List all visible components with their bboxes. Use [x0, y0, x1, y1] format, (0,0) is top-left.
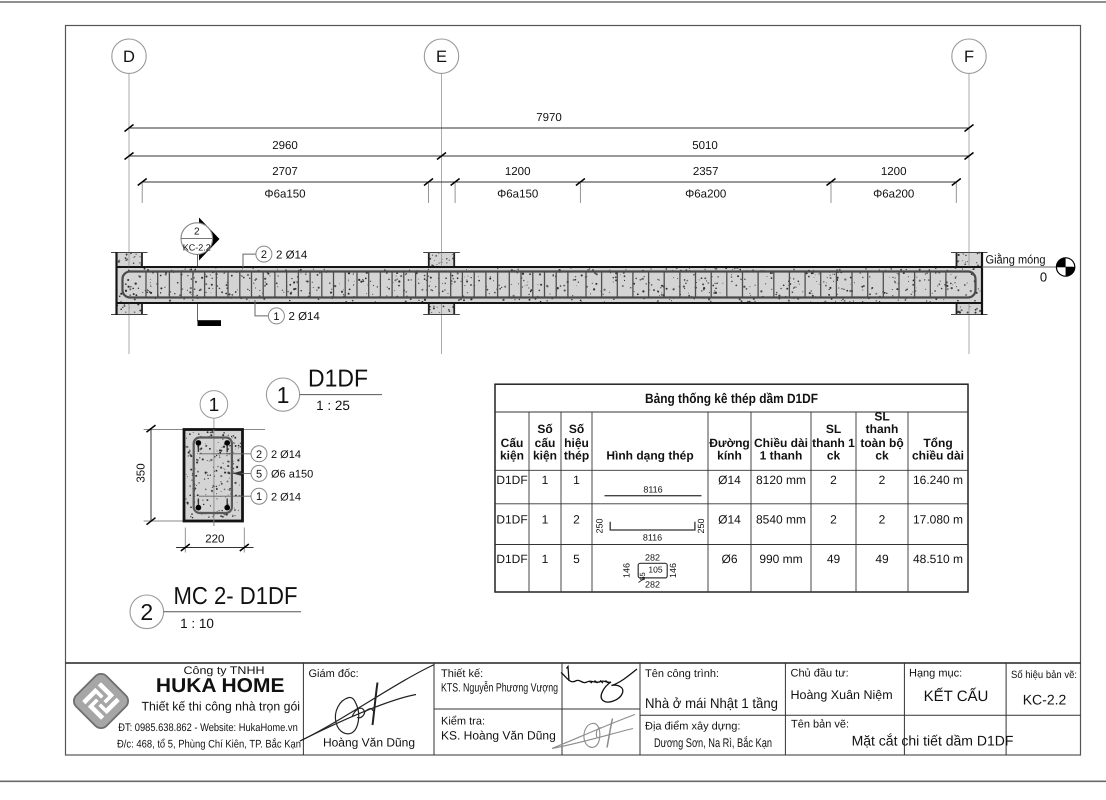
svg-text:2960: 2960	[272, 140, 298, 152]
svg-text:E: E	[436, 48, 447, 66]
svg-text:Ø6 a150: Ø6 a150	[271, 469, 313, 481]
svg-text:2: 2	[830, 513, 837, 527]
svg-text:KTS. Nguyễn Phương Vượng: KTS. Nguyễn Phương Vượng	[441, 681, 558, 695]
svg-text:1: 1	[542, 552, 549, 566]
svg-text:5: 5	[573, 552, 580, 566]
svg-text:Địa điểm xây dựng:: Địa điểm xây dựng:	[645, 721, 740, 733]
svg-text:8540 mm: 8540 mm	[756, 513, 806, 527]
svg-text:D1DF: D1DF	[496, 552, 527, 566]
svg-text:Số: Số	[537, 422, 552, 436]
svg-text:MC 2- D1DF: MC 2- D1DF	[174, 583, 298, 610]
svg-text:2: 2	[261, 249, 267, 261]
svg-text:Hoàng Xuân Niệm: Hoàng Xuân Niệm	[791, 688, 893, 702]
svg-text:Dương Sơn, Na Rì, Bắc Kạn: Dương Sơn, Na Rì, Bắc Kạn	[654, 736, 772, 750]
svg-text:thanh: thanh	[866, 422, 899, 436]
svg-text:Hạng mục:: Hạng mục:	[909, 668, 962, 680]
svg-text:1: 1	[256, 491, 262, 503]
svg-text:146: 146	[668, 563, 678, 578]
svg-text:250: 250	[595, 518, 605, 533]
svg-text:Số hiệu bản vẽ:: Số hiệu bản vẽ:	[1011, 669, 1077, 681]
svg-text:Chủ đầu tư:: Chủ đầu tư:	[791, 668, 849, 680]
svg-text:1 thanh: 1 thanh	[760, 449, 803, 463]
svg-text:2: 2	[830, 473, 837, 487]
svg-text:2: 2	[879, 513, 886, 527]
svg-text:Hoàng Văn Dũng: Hoàng Văn Dũng	[323, 736, 415, 750]
svg-text:Tên công trình:: Tên công trình:	[645, 668, 719, 680]
svg-text:Ø14: Ø14	[718, 513, 741, 527]
svg-text:8120 mm: 8120 mm	[756, 473, 806, 487]
svg-text:Nhà ở mái Nhật 1 tầng: Nhà ở mái Nhật 1 tầng	[645, 695, 778, 711]
svg-text:2: 2	[879, 473, 886, 487]
svg-text:KC-2.2: KC-2.2	[1023, 692, 1067, 708]
svg-text:1: 1	[277, 382, 290, 408]
svg-text:ck: ck	[875, 449, 889, 463]
svg-text:ĐT: 0985.638.862 - Website: Hu: ĐT: 0985.638.862 - Website: HukaHome.vn	[118, 722, 298, 734]
svg-text:KS. Hoàng Văn Dũng: KS. Hoàng Văn Dũng	[441, 729, 556, 743]
svg-text:Φ6a150: Φ6a150	[497, 189, 538, 201]
svg-text:1: 1	[573, 473, 580, 487]
svg-text:2 Ø14: 2 Ø14	[276, 249, 308, 261]
svg-text:1: 1	[273, 311, 279, 323]
svg-text:2 Ø14: 2 Ø14	[271, 491, 301, 503]
svg-text:2357: 2357	[693, 166, 719, 178]
svg-text:1: 1	[542, 513, 549, 527]
svg-text:282: 282	[645, 579, 660, 589]
svg-text:8116: 8116	[643, 533, 662, 543]
svg-text:1200: 1200	[505, 166, 531, 178]
svg-text:2: 2	[256, 449, 262, 461]
svg-text:Mặt cắt chi tiết dầm D1DF: Mặt cắt chi tiết dầm D1DF	[852, 733, 1014, 749]
svg-text:2 Ø14: 2 Ø14	[289, 311, 321, 323]
svg-text:D1DF: D1DF	[308, 366, 368, 393]
svg-text:1200: 1200	[881, 166, 907, 178]
svg-text:1 : 10: 1 : 10	[180, 616, 214, 631]
svg-text:thép: thép	[564, 449, 589, 463]
svg-text:5: 5	[256, 468, 262, 480]
svg-text:KẾT CẤU: KẾT CẤU	[924, 687, 989, 705]
svg-text:F: F	[964, 48, 974, 66]
svg-text:7970: 7970	[536, 112, 562, 124]
svg-text:2: 2	[194, 227, 200, 238]
svg-text:Bảng thống kê thép dầm D1DF: Bảng thống kê thép dầm D1DF	[645, 391, 818, 406]
svg-text:kiện: kiện	[500, 449, 524, 463]
svg-text:250: 250	[696, 518, 706, 533]
svg-text:Hình dạng thép: Hình dạng thép	[606, 449, 693, 463]
svg-text:282: 282	[645, 552, 660, 562]
svg-text:49: 49	[827, 552, 841, 566]
svg-text:ck: ck	[827, 449, 841, 463]
svg-text:Giám đốc:: Giám đốc:	[309, 668, 359, 680]
svg-text:350: 350	[136, 463, 148, 482]
svg-text:Thiết kế:: Thiết kế:	[441, 668, 483, 680]
svg-text:SL: SL	[826, 422, 841, 436]
svg-text:chiều dài: chiều dài	[912, 449, 964, 463]
svg-text:2707: 2707	[272, 166, 298, 178]
svg-text:990 mm: 990 mm	[759, 552, 802, 566]
svg-text:2: 2	[140, 599, 153, 625]
svg-text:1: 1	[542, 473, 549, 487]
svg-text:Tên bản vẽ:: Tên bản vẽ:	[791, 719, 849, 731]
svg-text:Φ6a200: Φ6a200	[873, 189, 914, 201]
svg-text:Ø6: Ø6	[721, 552, 737, 566]
svg-text:KC-2.2: KC-2.2	[183, 243, 211, 253]
svg-text:2 Ø14: 2 Ø14	[271, 449, 301, 461]
svg-text:1: 1	[209, 395, 220, 416]
svg-text:Đ/c: 468, tổ 5, Phùng Chí Kiên: Đ/c: 468, tổ 5, Phùng Chí Kiên, TP. Bắc …	[117, 738, 301, 751]
svg-text:2: 2	[573, 513, 580, 527]
svg-text:Φ6a150: Φ6a150	[264, 189, 305, 201]
svg-text:146: 146	[622, 563, 632, 578]
svg-text:1 : 25: 1 : 25	[316, 398, 350, 413]
svg-text:Kiểm tra:: Kiểm tra:	[441, 716, 485, 728]
svg-text:0: 0	[1040, 270, 1047, 285]
svg-text:Ø14: Ø14	[718, 473, 741, 487]
svg-text:220: 220	[205, 533, 224, 545]
svg-text:kính: kính	[717, 449, 742, 463]
svg-text:Giằng móng: Giằng móng	[986, 253, 1046, 267]
svg-text:16.240 m: 16.240 m	[913, 473, 963, 487]
svg-text:17.080 m: 17.080 m	[913, 513, 963, 527]
svg-text:HUKA HOME: HUKA HOME	[156, 675, 285, 697]
svg-text:D1DF: D1DF	[496, 513, 527, 527]
svg-text:105: 105	[648, 565, 662, 575]
svg-text:Thiết kế thi công nhà trọn gói: Thiết kế thi công nhà trọn gói	[142, 700, 301, 714]
svg-text:49: 49	[875, 552, 889, 566]
svg-text:Φ6a200: Φ6a200	[685, 189, 726, 201]
svg-text:8116: 8116	[643, 485, 662, 495]
svg-text:D1DF: D1DF	[496, 473, 527, 487]
svg-text:48.510 m: 48.510 m	[913, 552, 963, 566]
svg-text:Số: Số	[569, 422, 584, 436]
svg-text:D: D	[123, 48, 135, 66]
svg-text:5010: 5010	[692, 140, 718, 152]
svg-text:kiện: kiện	[533, 449, 557, 463]
